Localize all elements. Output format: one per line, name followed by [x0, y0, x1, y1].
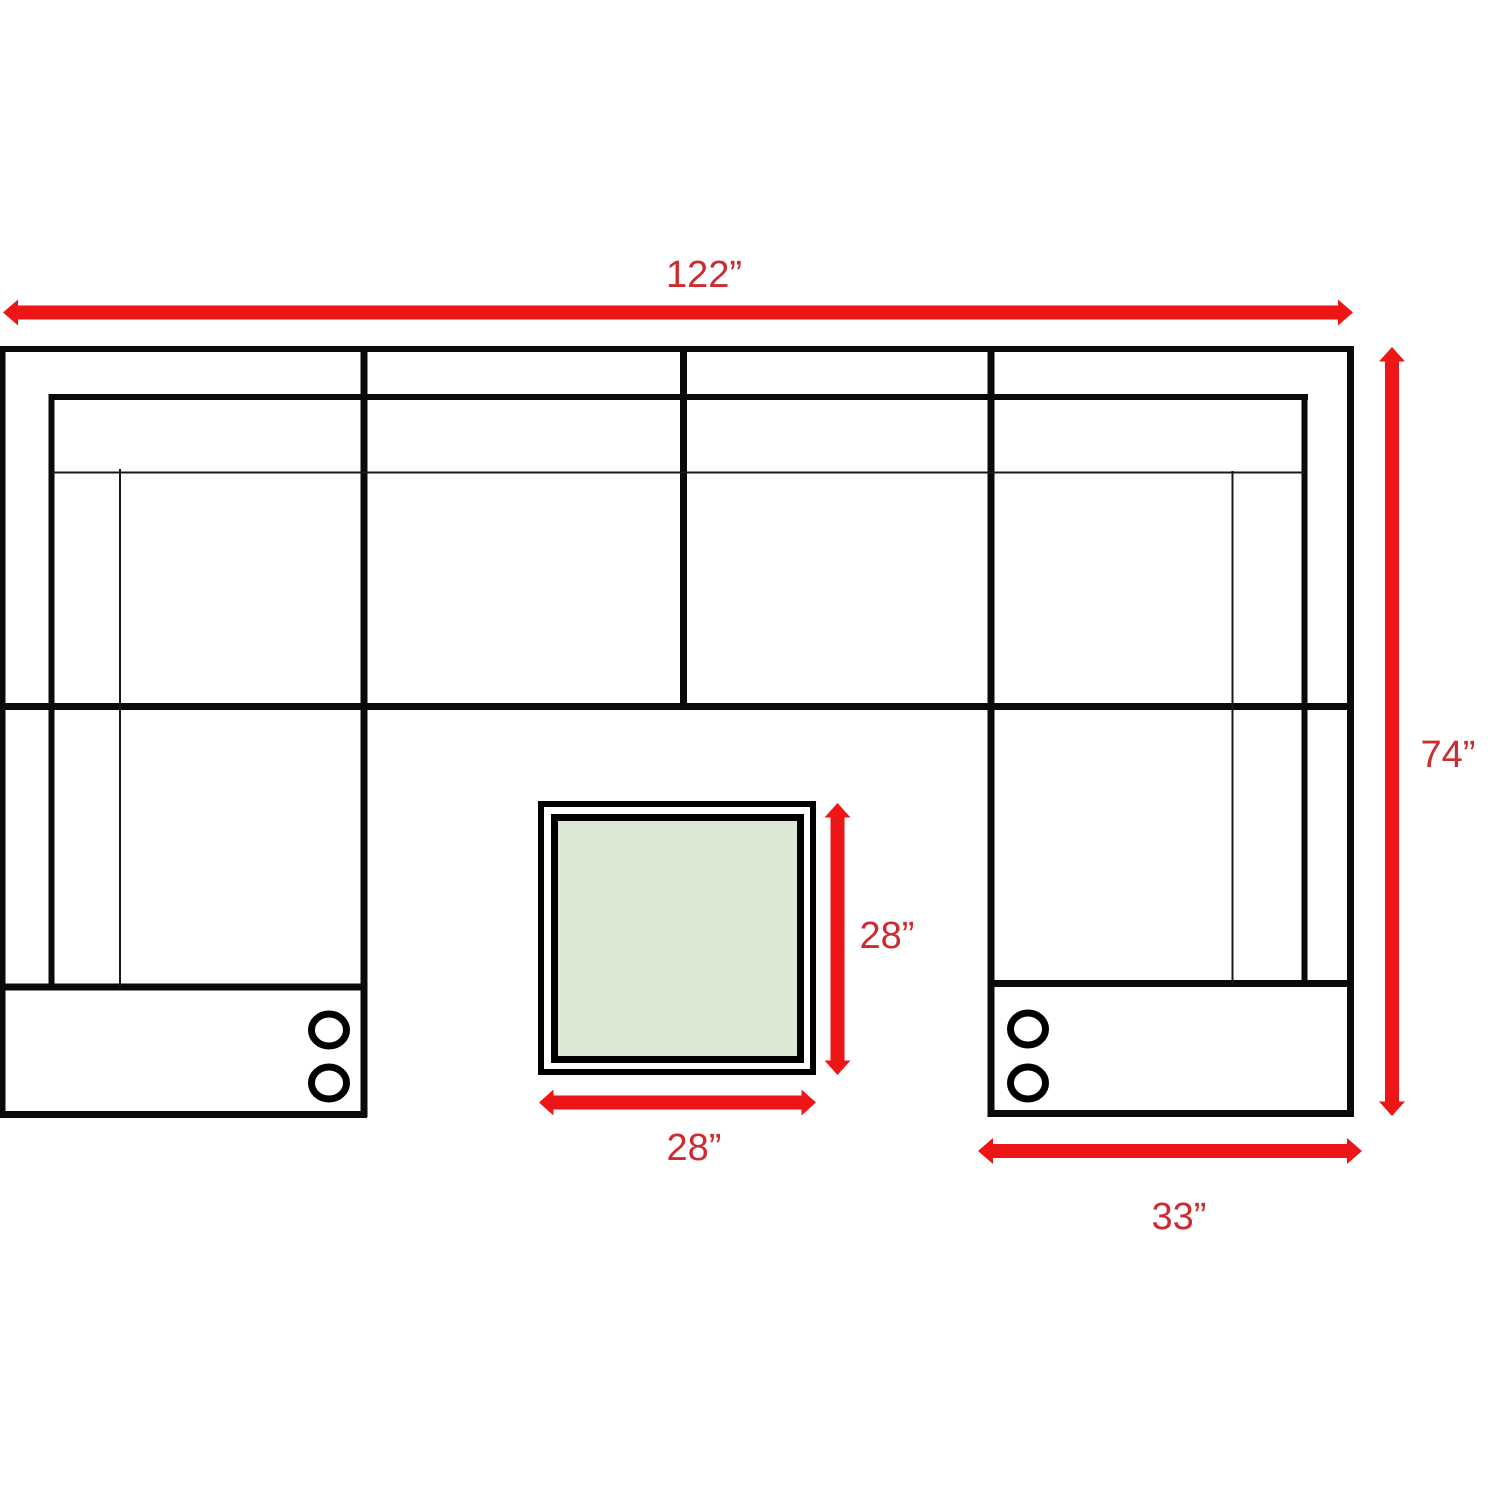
svg-text:33”: 33” [1152, 1196, 1207, 1238]
svg-text:28”: 28” [667, 1127, 722, 1169]
svg-text:122”: 122” [666, 254, 742, 296]
svg-text:28”: 28” [860, 915, 915, 957]
svg-text:74”: 74” [1421, 734, 1476, 776]
